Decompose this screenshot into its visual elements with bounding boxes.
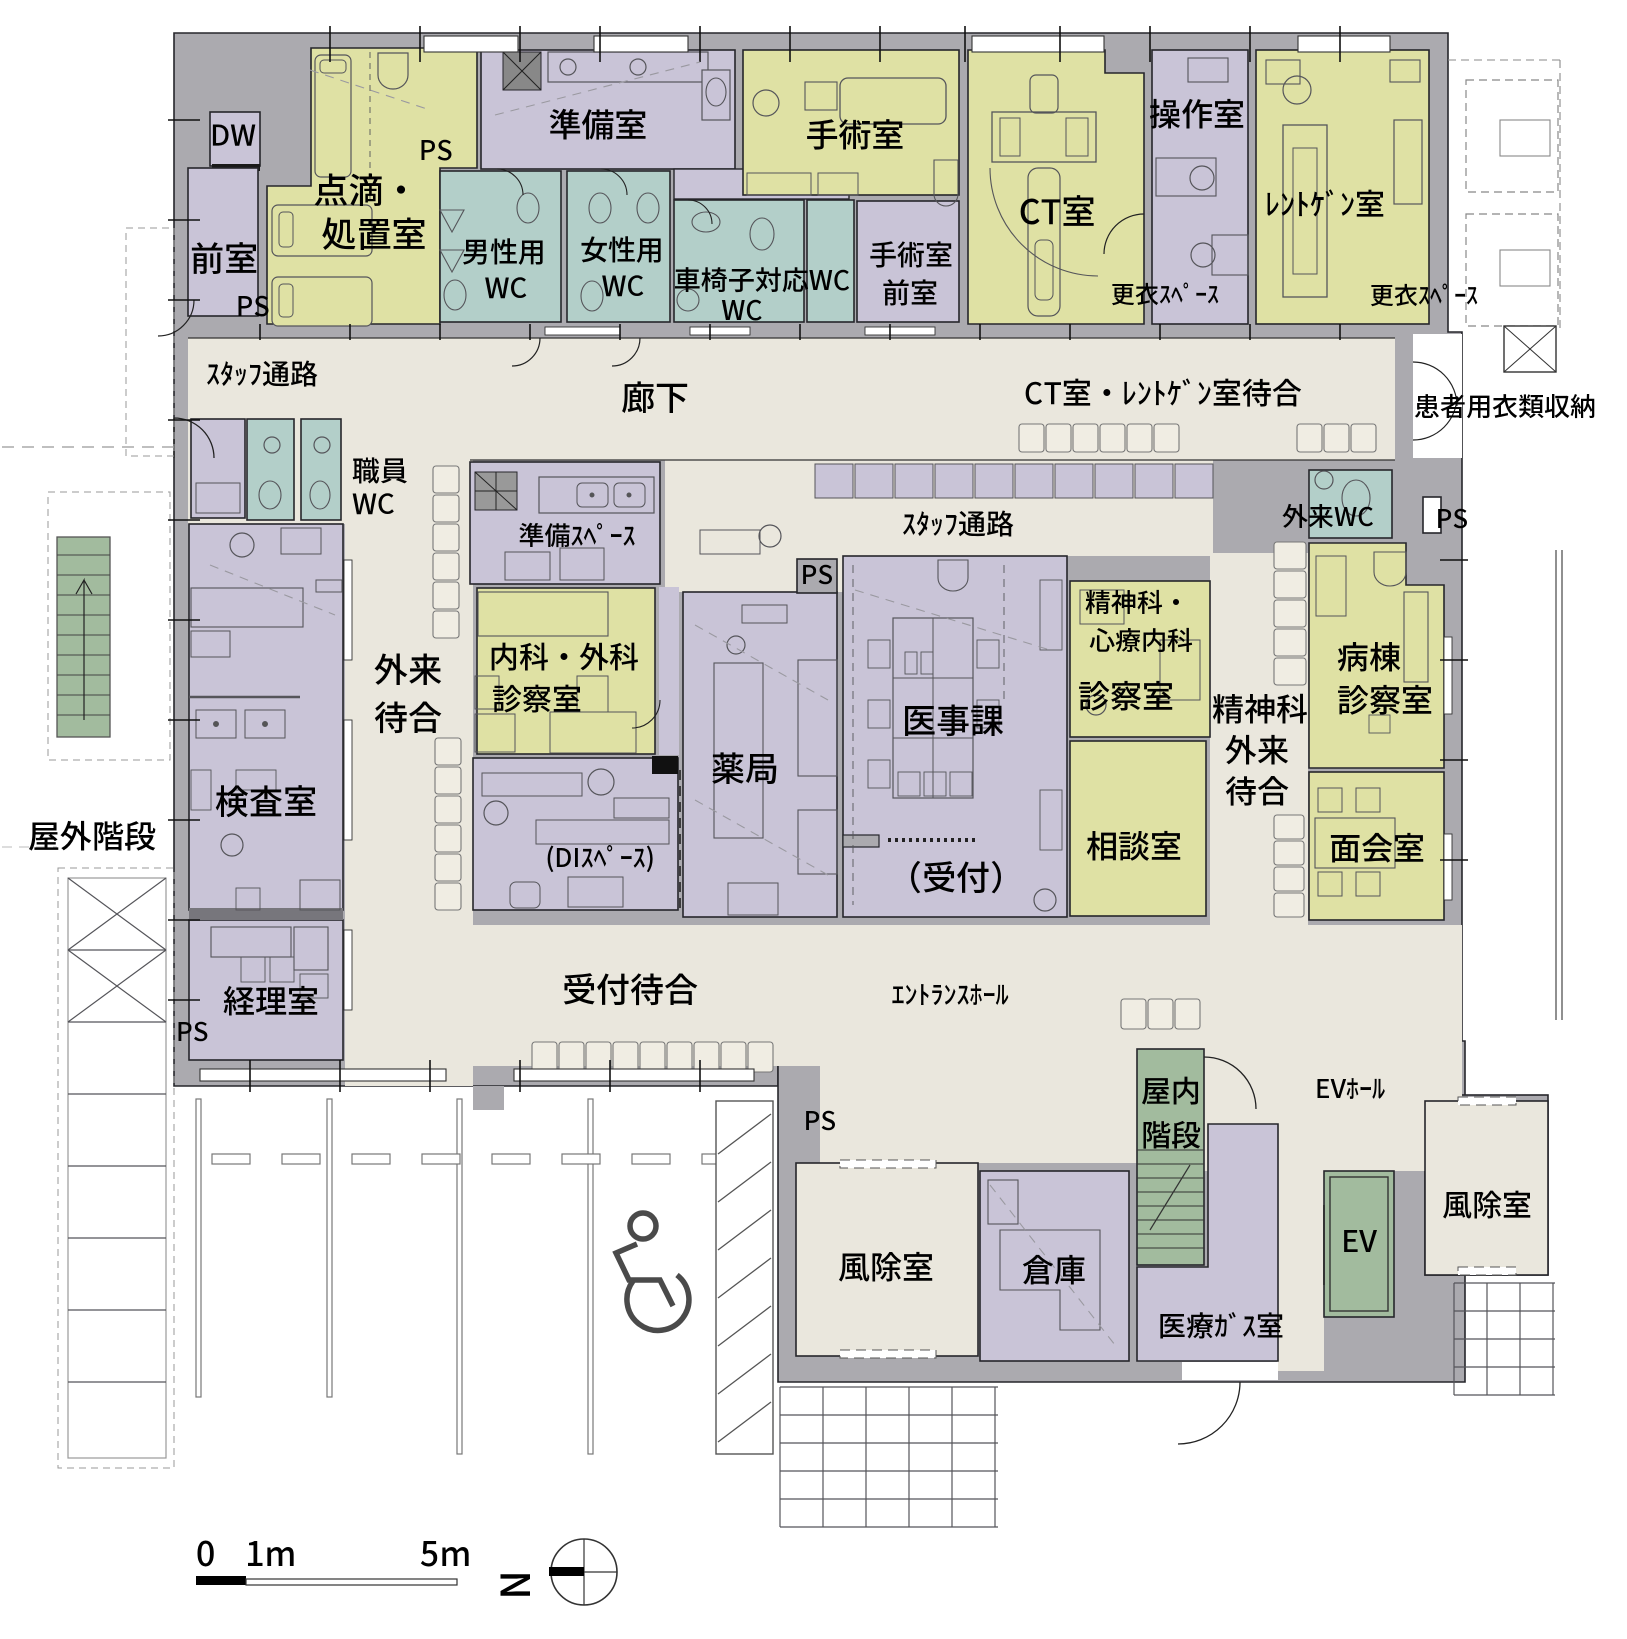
svg-text:DW: DW bbox=[210, 113, 256, 155]
svg-text:手術室: 手術室 bbox=[806, 109, 905, 157]
svg-text:前室: 前室 bbox=[190, 232, 258, 281]
svg-text:(DIｽﾍﾟｰｽ): (DIｽﾍﾟｰｽ) bbox=[545, 838, 655, 875]
svg-text:ｴﾝﾄﾗﾝｽﾎｰﾙ: ｴﾝﾄﾗﾝｽﾎｰﾙ bbox=[891, 975, 1009, 1012]
svg-text:処置室: 処置室 bbox=[321, 207, 426, 258]
svg-text:手術室: 手術室 bbox=[869, 234, 953, 274]
svg-text:5m: 5m bbox=[420, 1527, 471, 1576]
svg-text:WC: WC bbox=[721, 289, 763, 328]
svg-text:準備室: 準備室 bbox=[549, 99, 648, 147]
svg-text:PS: PS bbox=[1436, 499, 1469, 536]
svg-text:PS: PS bbox=[804, 1101, 837, 1138]
svg-text:EVﾎｰﾙ: EVﾎｰﾙ bbox=[1315, 1069, 1386, 1106]
svg-text:受付待合: 受付待合 bbox=[562, 963, 698, 1012]
svg-text:屋内: 屋内 bbox=[1141, 1067, 1201, 1111]
svg-text:PS: PS bbox=[419, 129, 453, 168]
svg-text:WC: WC bbox=[484, 267, 527, 307]
svg-text:風除室: 風除室 bbox=[1442, 1181, 1532, 1225]
svg-text:女性用: 女性用 bbox=[580, 229, 664, 269]
svg-text:廊下: 廊下 bbox=[621, 371, 689, 420]
svg-text:医事課: 医事課 bbox=[902, 694, 1004, 743]
svg-text:外来: 外来 bbox=[374, 643, 442, 692]
svg-text:EV: EV bbox=[1341, 1217, 1377, 1261]
svg-text:薬局: 薬局 bbox=[711, 742, 779, 791]
svg-text:男性用: 男性用 bbox=[462, 231, 546, 271]
svg-text:内科・外科: 内科・外科 bbox=[489, 633, 639, 677]
svg-text:階段: 階段 bbox=[1141, 1111, 1201, 1155]
svg-text:倉庫: 倉庫 bbox=[1022, 1246, 1086, 1292]
svg-text:操作室: 操作室 bbox=[1149, 90, 1245, 136]
svg-text:精神科・: 精神科・ bbox=[1085, 583, 1189, 620]
svg-text:PS: PS bbox=[176, 1012, 209, 1049]
svg-text:心療内科: 心療内科 bbox=[1089, 621, 1193, 658]
svg-text:診察室: 診察室 bbox=[1078, 672, 1174, 718]
svg-text:検査室: 検査室 bbox=[215, 775, 317, 824]
svg-text:診察室: 診察室 bbox=[492, 675, 582, 719]
svg-text:更衣ｽﾍﾟｰｽ: 更衣ｽﾍﾟｰｽ bbox=[1111, 275, 1219, 310]
svg-text:PS: PS bbox=[801, 555, 834, 592]
svg-text:ﾚﾝﾄｹﾞﾝ室: ﾚﾝﾄｹﾞﾝ室 bbox=[1265, 180, 1385, 224]
svg-text:病棟: 病棟 bbox=[1337, 633, 1401, 679]
svg-text:ｽﾀｯﾌ通路: ｽﾀｯﾌ通路 bbox=[902, 503, 1014, 543]
svg-text:経理室: 経理室 bbox=[223, 977, 319, 1023]
svg-text:ｽﾀｯﾌ通路: ｽﾀｯﾌ通路 bbox=[206, 353, 318, 393]
svg-text:外来: 外来 bbox=[1225, 726, 1289, 772]
svg-text:外来WC: 外来WC bbox=[1282, 497, 1374, 534]
svg-text:待合: 待合 bbox=[1225, 767, 1289, 813]
svg-text:0: 0 bbox=[196, 1527, 215, 1576]
svg-text:精神科: 精神科 bbox=[1212, 685, 1308, 731]
svg-text:更衣ｽﾍﾟｰｽ: 更衣ｽﾍﾟｰｽ bbox=[1370, 276, 1478, 311]
svg-text:患者用衣類収納: 患者用衣類収納 bbox=[1414, 387, 1596, 424]
svg-text:WC: WC bbox=[601, 265, 644, 305]
svg-text:PS: PS bbox=[236, 285, 270, 324]
svg-text:準備ｽﾍﾟｰｽ: 準備ｽﾍﾟｰｽ bbox=[518, 516, 635, 553]
svg-text:待合: 待合 bbox=[374, 691, 442, 740]
svg-text:前室: 前室 bbox=[882, 272, 938, 312]
svg-text:1m: 1m bbox=[245, 1527, 296, 1576]
svg-text:（受付）: （受付） bbox=[888, 851, 1024, 900]
svg-text:医療ｶﾞｽ室: 医療ｶﾞｽ室 bbox=[1158, 1305, 1284, 1345]
svg-text:CT室・ﾚﾝﾄｹﾞﾝ室待合: CT室・ﾚﾝﾄｹﾞﾝ室待合 bbox=[1024, 369, 1302, 413]
svg-text:面会室: 面会室 bbox=[1329, 824, 1425, 870]
svg-text:診察室: 診察室 bbox=[1337, 676, 1433, 722]
svg-text:風除室: 風除室 bbox=[838, 1243, 934, 1289]
svg-text:N: N bbox=[484, 1570, 542, 1599]
svg-text:屋外階段: 屋外階段 bbox=[28, 812, 156, 858]
svg-text:CT室: CT室 bbox=[1019, 185, 1096, 234]
svg-text:相談室: 相談室 bbox=[1086, 822, 1182, 868]
svg-text:WC: WC bbox=[352, 483, 395, 523]
